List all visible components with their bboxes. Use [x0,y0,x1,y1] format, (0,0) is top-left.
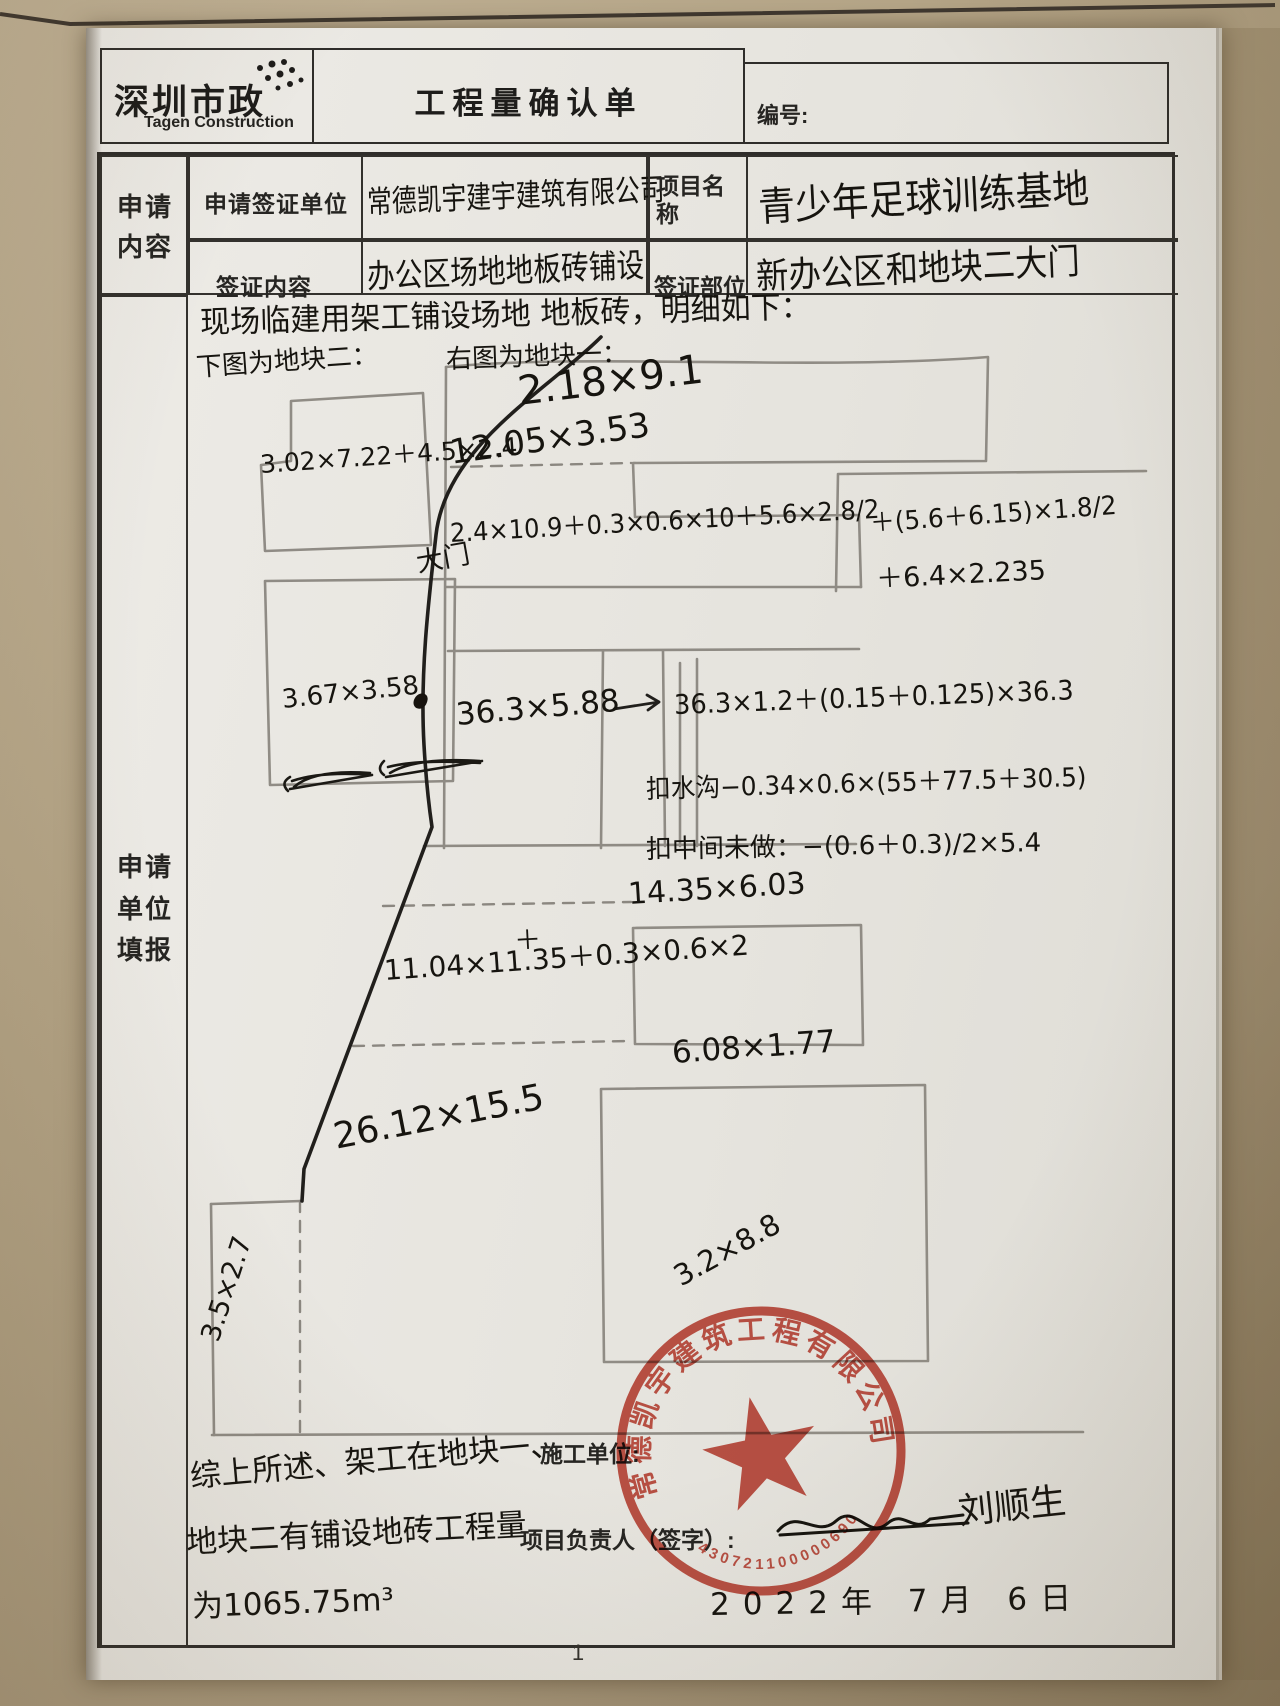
seal-number-text: 430721100000690 [692,1506,870,1589]
svg-text:430721100000690: 430721100000690 [692,1506,870,1589]
summary-line3: 为1065.75m³ [191,1574,394,1626]
form-number-label: 编号: [757,98,808,130]
project-name-label: 项目名称 [656,173,744,228]
form-number-cell: 编号: [745,62,1169,144]
paper-sheet: 深圳市政 Tagen Construction 工程量确认单 编号: 申请内容 … [86,28,1222,1680]
application-content-label: 申请内容 [117,187,177,268]
company-seal: 常德凯宇建筑工程有限公司 430721100000690 [583,1273,939,1629]
form-table: 申请内容 申请签证单位 常德凯宇建宇建筑有限公司 项目名称 青少年足球训练基地 … [97,152,1175,1648]
fill-in-cell: 申请单位填报 [100,295,188,1648]
deduct-middle: 扣中间未做：−(0.6＋0.3)/2×5.4 [646,822,1042,866]
form-title: 工程量确认单 [314,78,743,123]
logo-cell: 深圳市政 Tagen Construction [100,48,312,144]
page-number: 1 [548,1640,608,1666]
form-title-cell: 工程量确认单 [312,48,745,144]
application-content-cell: 申请内容 [100,155,188,295]
apply-unit-label: 申请签证单位 [204,185,348,219]
paper-right-fold [1219,28,1280,1680]
apply-unit-label-cell: 申请签证单位 [188,155,363,240]
project-name-value: 青少年足球训练基地 [757,156,1091,233]
sketch-area: 现场临建用架工铺设场地 地板砖，明细如下： 下图为地块二： 右图为地块一： 3.… [188,295,1178,1648]
project-name-value-cell: 青少年足球训练基地 [748,155,1178,240]
insert-plus-mark: ＋ [513,918,542,958]
logo-dots-icon [248,56,318,100]
visa-part-value-cell: 新办公区和地块二大门 [748,240,1178,295]
logo-en: Tagen Construction [144,114,294,132]
seal-star-icon [694,1385,828,1515]
apply-unit-value: 常德凯宇建宇建筑有限公司 [366,164,665,222]
fill-in-label: 申请单位填报 [117,847,177,972]
project-name-label-cell: 项目名称 [648,155,748,240]
visa-content-label-cell: 签证内容 [188,240,363,295]
apply-unit-value-cell: 常德凯宇建宇建筑有限公司 [363,155,648,240]
